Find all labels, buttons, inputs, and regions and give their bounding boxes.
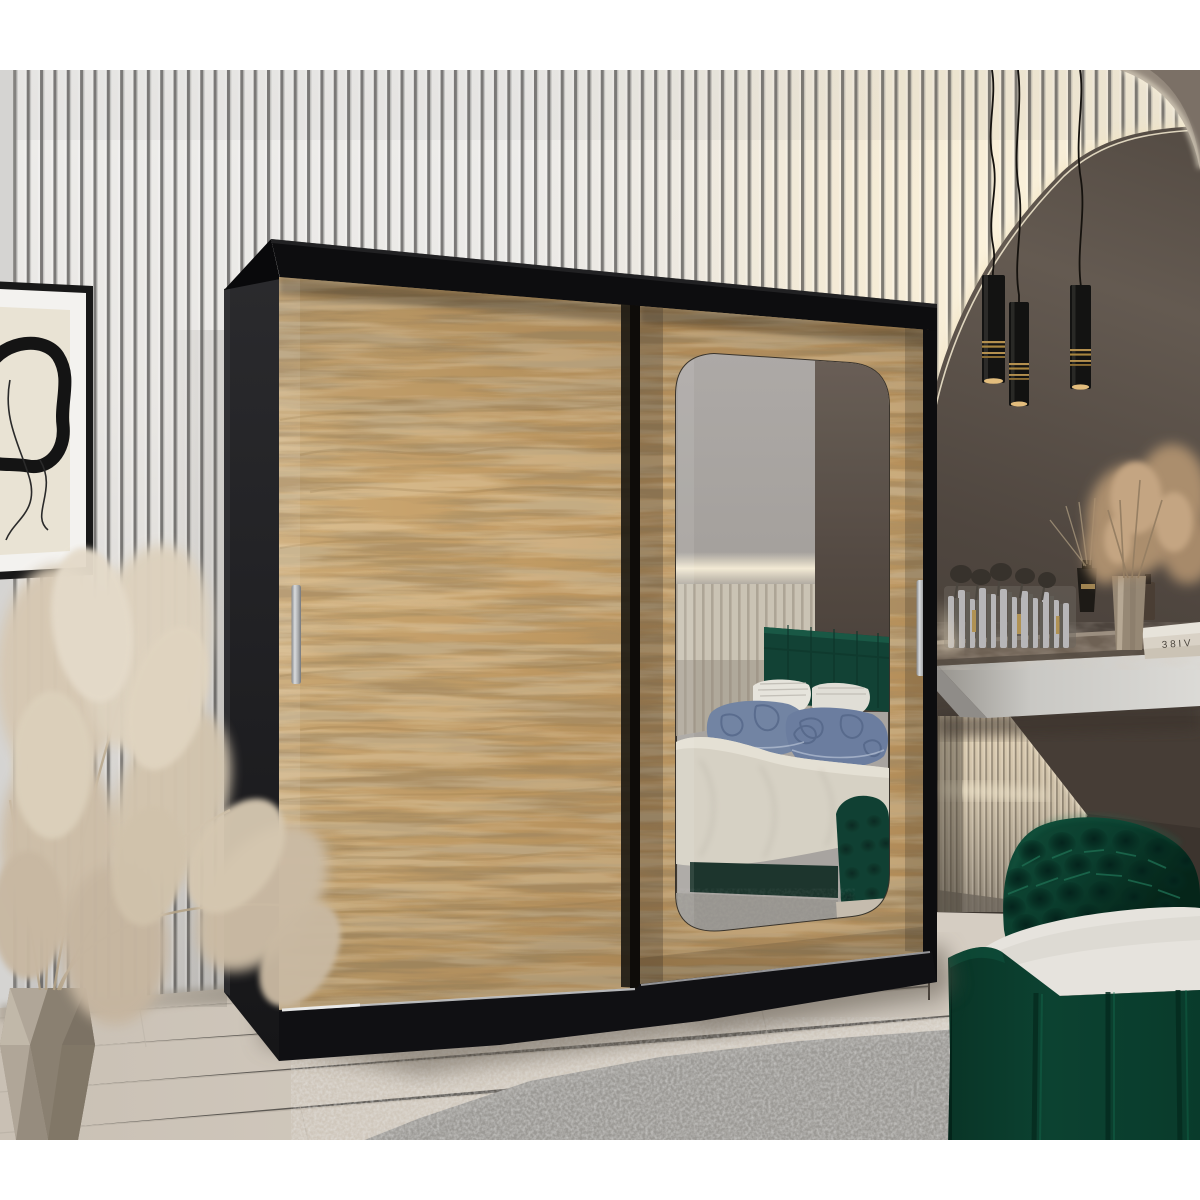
svg-text:3 8 I V: 3 8 I V [1161, 638, 1191, 651]
